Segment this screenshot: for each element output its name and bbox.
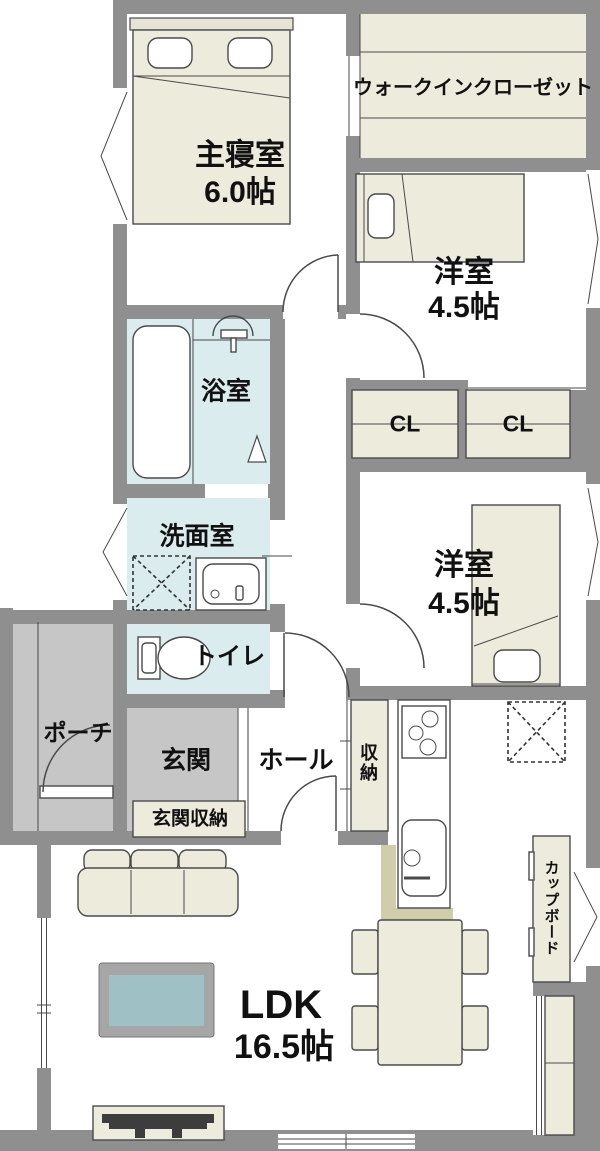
dining-chair (352, 930, 378, 974)
label-porch: ポーチ (44, 722, 113, 745)
dining-table (378, 920, 462, 1065)
dining-chair (462, 930, 488, 974)
front-door (40, 786, 113, 798)
label-master-bedroom: 主寝室 (195, 141, 285, 171)
dining-chair (352, 1006, 378, 1050)
label-ldk: LDK (240, 985, 322, 1025)
ldk-left-window (37, 918, 51, 1068)
label-ldk-size: 16.5帖 (234, 1030, 334, 1064)
tv (102, 1114, 214, 1123)
master-bed-headboard (130, 18, 293, 30)
kitchen-sink (402, 820, 446, 896)
bathtub (133, 326, 190, 478)
label-bedroom-lower-size: 4.5帖 (428, 589, 500, 619)
label-bedroom-upper: 洋室 (434, 258, 494, 288)
washroom-window (113, 504, 127, 600)
label-bedroom-upper-size: 4.5帖 (428, 293, 500, 323)
floor-plan-drawing (0, 0, 600, 1151)
dining-chair (462, 1006, 488, 1050)
label-bathroom: 浴室 (201, 380, 251, 405)
label-entrance: 玄関 (161, 749, 211, 774)
window-counter (545, 996, 574, 1135)
label-cupboard: カップボード (544, 860, 559, 956)
label-storage: 収納 (359, 743, 377, 783)
label-master-bedroom-size: 6.0帖 (204, 178, 276, 208)
label-closet-right: CL (503, 413, 534, 436)
floor-plan: ウォークインクローゼット 主寝室 6.0帖 洋室 4.5帖 浴室 CL CL 洗… (0, 0, 600, 1151)
label-hall: ホール (258, 749, 333, 774)
ldk-right-window (533, 996, 545, 1135)
label-bedroom-lower: 洋室 (434, 551, 494, 581)
label-washroom: 洗面室 (159, 525, 234, 550)
label-toilet: トイレ (193, 645, 265, 669)
kitchen-window (572, 868, 600, 966)
label-entrance-storage: 玄関収納 (152, 810, 228, 829)
label-closet-left: CL (390, 413, 421, 436)
label-walk-in-closet: ウォークインクローゼット (353, 78, 593, 98)
